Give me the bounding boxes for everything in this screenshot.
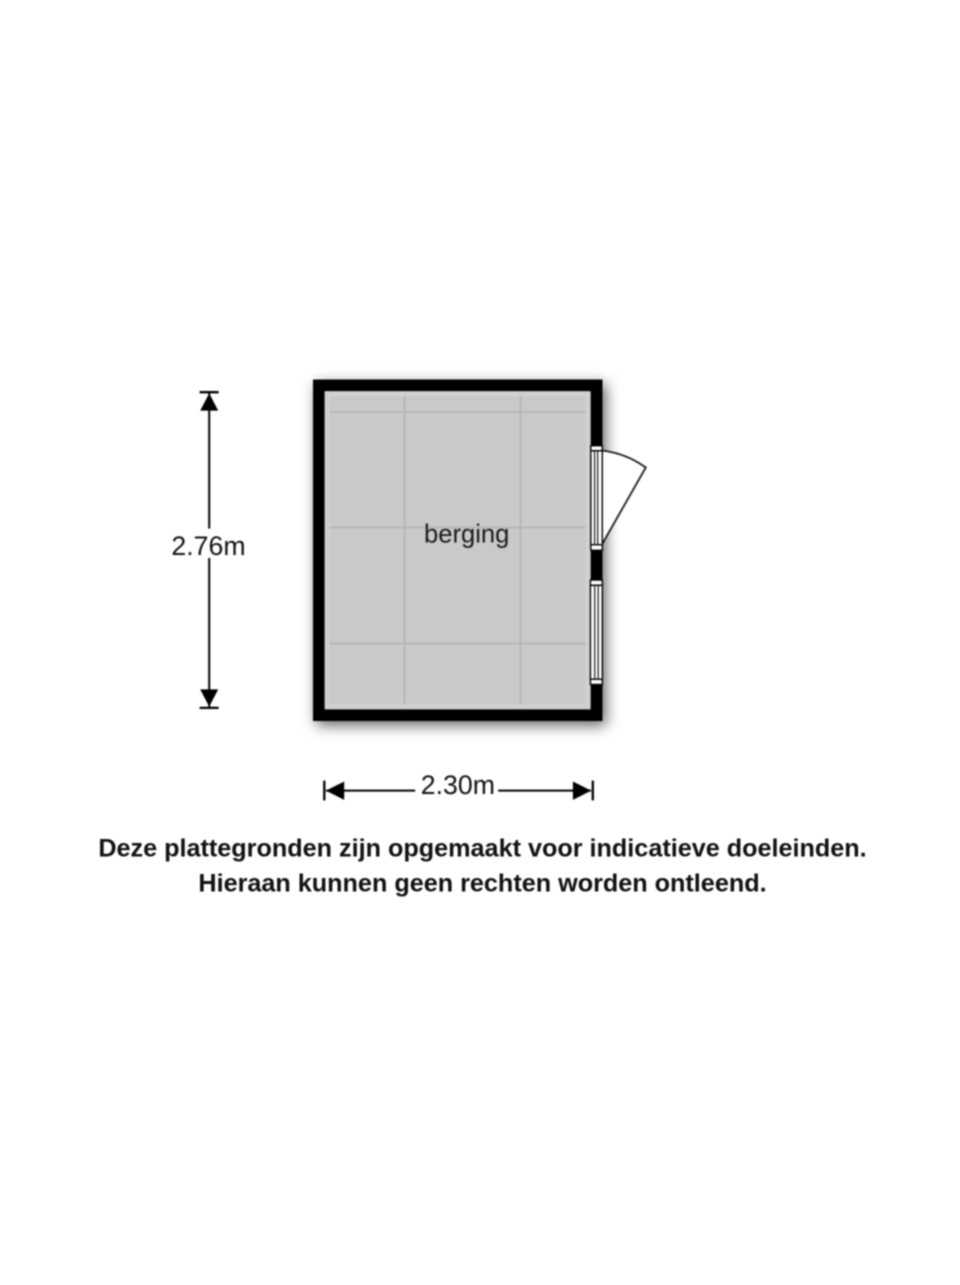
svg-text:Hieraan kunnen geen rechten wo: Hieraan kunnen geen rechten worden ontle… xyxy=(198,869,766,897)
svg-text:2.76m: 2.76m xyxy=(171,531,245,561)
svg-text:Deze plattegronden zijn opgema: Deze plattegronden zijn opgemaakt voor i… xyxy=(98,835,866,863)
svg-text:berging: berging xyxy=(424,520,509,548)
svg-text:2.30m: 2.30m xyxy=(421,770,495,800)
